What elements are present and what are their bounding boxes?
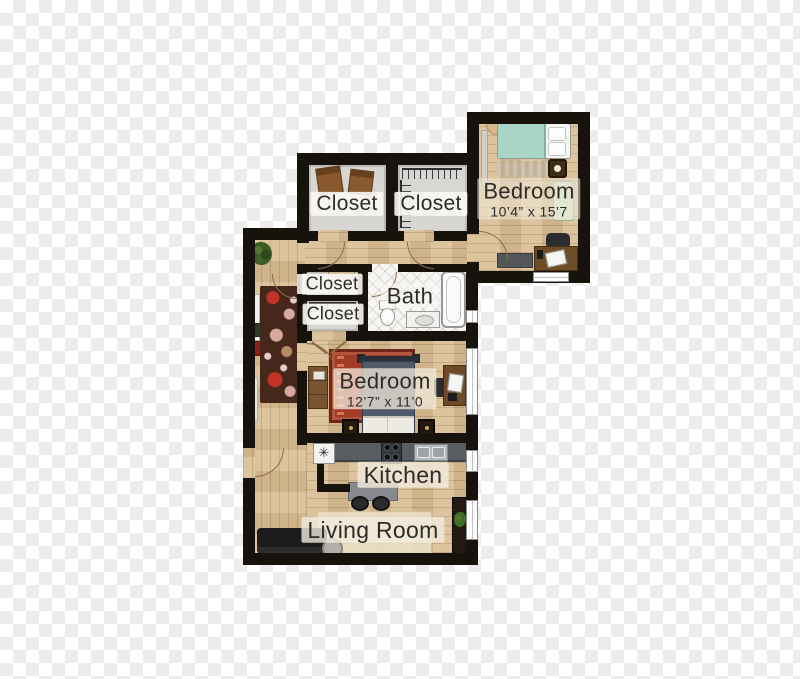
hanger-rail [402,168,462,179]
window [466,310,478,323]
sink-basin [415,315,434,326]
room-label-living-room: Living Room [301,517,444,543]
room-label-bath: Bath [381,283,439,308]
room-label-kitchen: Kitchen [358,462,449,488]
bed-pillow [548,127,566,141]
room-label-closet-top-left: Closet [310,192,383,216]
door-opening [318,230,348,242]
tv-console [452,497,467,554]
window [466,450,478,472]
desk-chair [546,233,570,247]
knob [425,426,429,430]
door-opening [297,343,307,371]
wall [467,112,590,124]
bath-vanity [406,311,440,328]
nightstand [548,159,567,178]
desk [443,365,466,406]
wall [317,464,324,492]
dishwasher-icon: ✳ [319,447,330,460]
sink-basin [432,447,445,458]
window [533,272,569,282]
wall [307,295,358,301]
dresser [308,366,328,409]
room-label-bedroom-main: Bedroom 12’7” x 11’0 [333,368,436,409]
stove [381,441,402,464]
knob [349,426,353,430]
lamp [554,165,561,172]
room-name: Bedroom [339,368,430,393]
desk-lamp [537,250,543,259]
wall [297,433,466,443]
sink-basin [417,447,430,458]
stool [372,496,390,511]
laptop [447,373,464,393]
floor-plan-canvas: ✳ [0,0,800,679]
bed-teal [497,123,571,159]
room-label-bedroom-top: Bedroom 10’4” x 15’7 [477,178,580,219]
door-opening [312,331,346,341]
room-label-closet-top-right: Closet [394,192,467,216]
room-dimensions: 12’7” x 11’0 [339,394,430,410]
bed-blanket [498,124,546,158]
door-opening [372,264,398,272]
wall [467,271,590,283]
door-opening [467,234,479,262]
plant [454,512,466,527]
room-label-closet-mid-top: Closet [302,274,363,295]
room-dimensions: 10’4” x 15’7 [483,204,574,220]
room-label-closet-mid-bottom: Closet [303,304,364,325]
laptop [545,249,568,268]
window [466,500,478,540]
desk [534,246,578,271]
door-opening [404,230,434,242]
bed-pillow [548,142,566,156]
tub-basin [446,276,461,323]
stool [351,496,369,511]
desk-item [448,393,457,401]
room-name: Bedroom [483,178,574,203]
door-opening [243,448,255,478]
wall [243,553,478,565]
kitchen-sink [414,444,448,461]
decor [313,371,325,380]
wall [243,228,255,565]
window [466,348,478,415]
bathtub [441,271,466,328]
dishwasher: ✳ [313,443,335,464]
